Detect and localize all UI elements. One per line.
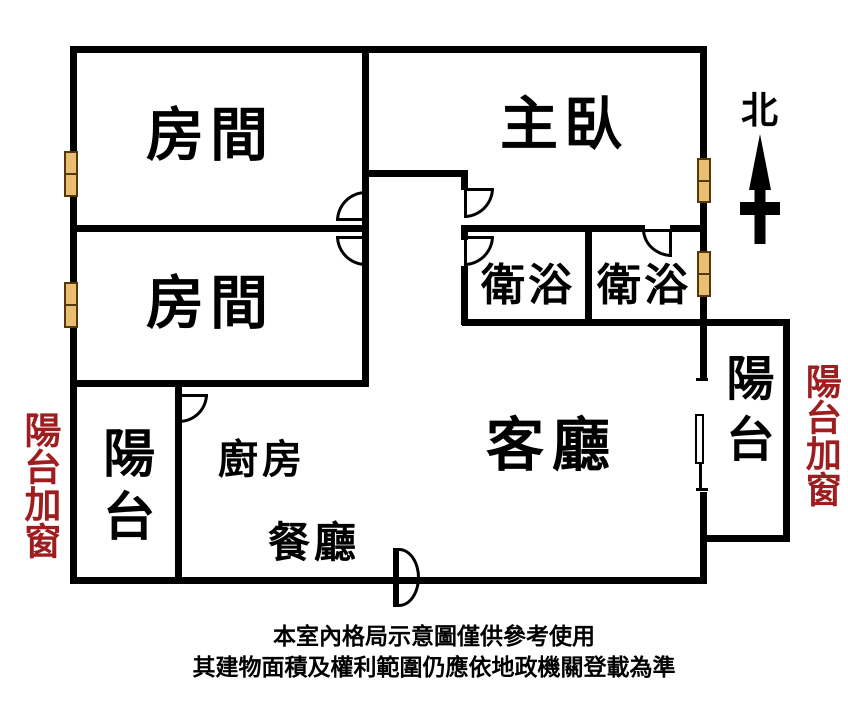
window-right-bottom [697,251,711,297]
wall-balcony-bottom [700,535,790,542]
window-mullion [699,180,709,182]
balcony-note-left: 陽台加窗 [19,411,58,559]
sliding-door-tick-bottom [696,488,708,491]
wall-hall-right-c [461,266,468,325]
room-label-balcony-left: 陽台 [96,426,151,552]
wall-bottom [70,577,707,584]
room-label-bath-left: 衛浴 [481,263,575,309]
wall-baths-divider [585,225,592,326]
wall-top [70,46,707,53]
window-mullion [699,273,709,275]
door-bedroom-top [336,191,366,221]
wall-hall-right-a [461,170,468,190]
wall-bedroom2-bottom [70,380,369,387]
door-bedroom-mid [336,236,366,266]
door-entrance-arc [399,548,420,607]
disclaimer-line-2: 其建物面積及權利範圍仍應依地政機關登載為準 [10,648,848,682]
room-label-master: 主臥 [500,94,628,155]
wall-bedroom-divider [70,225,366,232]
room-label-living: 客廳 [486,415,618,476]
north-arrow-icon [735,130,785,250]
room-label-dining: 餐廳 [268,521,360,565]
window-left-top [64,151,78,197]
wall-master-bath-a [461,225,645,232]
sliding-door-tick-top [696,378,708,381]
wall-bath-balcony-top [462,319,790,326]
window-right-top [697,158,711,203]
disclaimer-line-1: 本室內格局示意圖僅供參考使用 [10,617,848,651]
sliding-door-panel [695,414,704,464]
window-left-bottom [64,282,78,328]
balcony-note-right: 陽台加窗 [801,363,839,507]
wall-right-upper [700,46,707,380]
wall-corridor-top [362,170,468,177]
north-label: 北 [741,92,778,131]
sliding-door-rail [699,462,702,491]
wall-balcony-right [783,319,790,542]
floor-plan: 房間 房間 主臥 衛浴 衛浴 陽台 廚房 餐廳 客廳 陽台 北 陽台加窗 陽台加… [0,0,848,717]
room-label-bedroom-top: 房間 [146,105,274,166]
room-label-balcony-right: 陽台 [720,353,770,475]
window-mullion [66,173,76,175]
door-master [464,188,494,218]
room-label-kitchen: 廚房 [218,439,306,481]
window-mullion [66,304,76,306]
room-label-bedroom-mid: 房間 [146,273,274,334]
wall-master-bath-b [670,225,707,232]
door-bath-right [642,229,672,257]
room-label-bath-right: 衛浴 [597,263,691,309]
door-kitchen [179,394,208,423]
